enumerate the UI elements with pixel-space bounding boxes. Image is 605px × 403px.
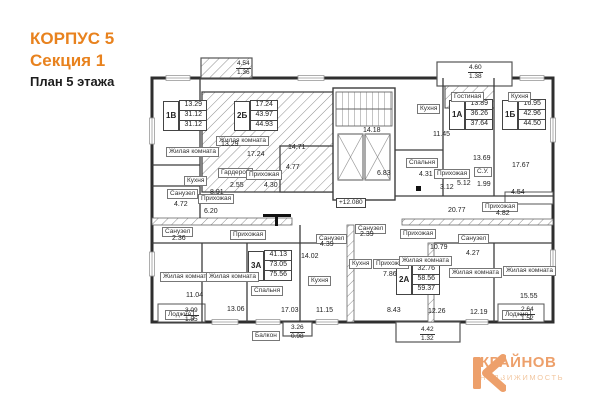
dimension: 3.12 bbox=[440, 184, 454, 191]
apartment-stamp: 1В 13.2931.1231.12 bbox=[163, 101, 207, 131]
room-label: Жилая комната bbox=[166, 147, 219, 157]
frac-top: 4.60 bbox=[468, 64, 483, 73]
room-label: С.У. bbox=[474, 167, 492, 177]
dim-fraction: 4.421.32 bbox=[420, 326, 435, 343]
dim-fraction: 4.541.36 bbox=[236, 60, 251, 77]
apartment-stamp: 1А 13.8936.2637.64 bbox=[449, 100, 493, 130]
dimension: 4.54 bbox=[511, 189, 525, 196]
dimension: 13.69 bbox=[473, 155, 491, 162]
dimension: 2.36 bbox=[172, 235, 186, 242]
stamp-areas: 13.2931.1231.12 bbox=[179, 101, 207, 131]
company-logo: КРАЙНОВ НЕДВИЖИМОСТЬ bbox=[472, 354, 564, 382]
dimension: 13.29 bbox=[221, 141, 239, 148]
frac-top: 4.54 bbox=[236, 60, 251, 69]
stamp-areas: 41.1373.0575.56 bbox=[264, 251, 292, 281]
dimension: 12.19 bbox=[470, 309, 488, 316]
frac-bottom: 1.32 bbox=[421, 335, 434, 343]
dim-fraction: 2.641.52 bbox=[520, 306, 535, 323]
floor-title: План 5 этажа bbox=[30, 72, 114, 92]
room-label: Санузел bbox=[458, 234, 489, 244]
dimension: 4.72 bbox=[174, 201, 188, 208]
frac-bottom: 1.55 bbox=[185, 316, 198, 324]
dimension: 14.18 bbox=[363, 127, 381, 134]
room-label: Прихожая bbox=[246, 170, 282, 180]
dim-fraction: 4.601.38 bbox=[468, 64, 483, 81]
stamp-area: 59.37 bbox=[412, 284, 440, 295]
stamp-type: 1В bbox=[163, 101, 179, 131]
dimension: 2.39 bbox=[360, 231, 374, 238]
stamp-area: 75.56 bbox=[264, 270, 292, 281]
room-label: Жилая комната bbox=[503, 266, 556, 276]
dimension: 2.55 bbox=[230, 182, 244, 189]
dimension: 6.20 bbox=[204, 208, 218, 215]
room-label: Санузел bbox=[167, 189, 198, 199]
dim-fraction: 3.260.98 bbox=[290, 324, 305, 341]
room-label: Жилая комната bbox=[206, 272, 259, 282]
dimension: 6.83 bbox=[377, 170, 391, 177]
stamp-type: 1Б bbox=[502, 100, 518, 130]
dimension: 14.71 bbox=[288, 144, 306, 151]
dimension: 13.06 bbox=[227, 306, 245, 313]
dimension: 8.43 bbox=[387, 307, 401, 314]
stair-elevator-core bbox=[333, 88, 395, 200]
section-title: Секция 1 bbox=[30, 50, 114, 72]
dimension: 11.04 bbox=[186, 292, 203, 299]
room-label: Жилая комната bbox=[160, 272, 213, 282]
dimension: 17.67 bbox=[512, 162, 530, 169]
dimension: 7.86 bbox=[383, 271, 397, 278]
room-label: Прихожая bbox=[230, 230, 266, 240]
frac-top: 3.26 bbox=[290, 324, 305, 333]
stamp-area: 44.50 bbox=[518, 119, 546, 130]
dimension: 4.27 bbox=[466, 250, 480, 257]
dimension: 10.79 bbox=[430, 244, 448, 251]
dimension: 17.24 bbox=[247, 151, 265, 158]
elevation-mark: +12.080 bbox=[336, 198, 366, 208]
frac-bottom: 1.36 bbox=[237, 69, 250, 77]
room-label: Спальня bbox=[406, 158, 438, 168]
frac-top: 3.09 bbox=[184, 307, 199, 316]
room-label: Кухня bbox=[349, 259, 372, 269]
room-label: Жилая комната bbox=[399, 256, 452, 266]
dimension: 4.82 bbox=[496, 210, 510, 217]
dimension: 12.26 bbox=[428, 308, 446, 315]
room-label: Спальня bbox=[251, 286, 283, 296]
title-block: КОРПУС 5 Секция 1 План 5 этажа bbox=[30, 28, 114, 92]
stamp-area: 44.93 bbox=[250, 120, 278, 131]
stamp-areas: 13.8936.2637.64 bbox=[465, 100, 493, 130]
frac-top: 4.42 bbox=[420, 326, 435, 335]
logo-k-house-icon bbox=[472, 354, 506, 392]
dimension: 4.39 bbox=[320, 241, 334, 248]
stamp-area: 37.64 bbox=[465, 119, 493, 130]
dim-fraction: 3.091.55 bbox=[184, 307, 199, 324]
room-label: Кухня bbox=[184, 176, 207, 186]
frac-bottom: 0.98 bbox=[291, 333, 304, 341]
frac-bottom: 1.38 bbox=[469, 73, 482, 81]
dimension: 14.02 bbox=[301, 253, 319, 260]
dimension: 20.77 bbox=[448, 207, 466, 214]
room-label: Прихожая bbox=[400, 229, 436, 239]
dimension: 17.03 bbox=[281, 307, 299, 314]
dimension: 5.12 bbox=[457, 180, 471, 187]
stamp-area: 31.12 bbox=[179, 120, 207, 131]
dimension: 4.77 bbox=[286, 164, 300, 171]
dimension: 8.91 bbox=[210, 189, 224, 196]
stamp-areas: 16.9542.9644.50 bbox=[518, 100, 546, 130]
stamp-areas: 17.2443.9744.93 bbox=[250, 101, 278, 131]
dimension: 11.15 bbox=[316, 307, 333, 314]
stamp-type: 1А bbox=[449, 100, 465, 130]
dimension: 11.45 bbox=[433, 131, 450, 138]
room-label: Гостиная bbox=[451, 92, 484, 102]
room-label: Кухня bbox=[417, 104, 440, 114]
apartment-stamp: 2Б 17.2443.9744.93 bbox=[234, 101, 278, 131]
stamp-type: 2Б bbox=[234, 101, 250, 131]
stamp-type: 2А bbox=[396, 265, 412, 295]
dimension: 15.55 bbox=[520, 293, 538, 300]
stamp-areas: 32.7658.5659.37 bbox=[412, 265, 440, 295]
room-label: Жилая комната bbox=[449, 268, 502, 278]
room-label: Кухня bbox=[508, 92, 531, 102]
frac-bottom: 1.52 bbox=[521, 315, 534, 323]
dimension: 4.31 bbox=[419, 171, 433, 178]
room-label: Прихожая bbox=[434, 169, 470, 179]
dimension: 1.99 bbox=[477, 181, 491, 188]
building-title: КОРПУС 5 bbox=[30, 28, 114, 50]
frac-top: 2.64 bbox=[520, 306, 535, 315]
dimension: 4.30 bbox=[264, 182, 278, 189]
apartment-stamp: 1Б 16.9542.9644.50 bbox=[502, 100, 546, 130]
room-label: Балкон bbox=[252, 331, 280, 341]
apartment-stamp: 2А 32.7658.5659.37 bbox=[396, 265, 440, 295]
room-label: Кухня bbox=[308, 276, 331, 286]
